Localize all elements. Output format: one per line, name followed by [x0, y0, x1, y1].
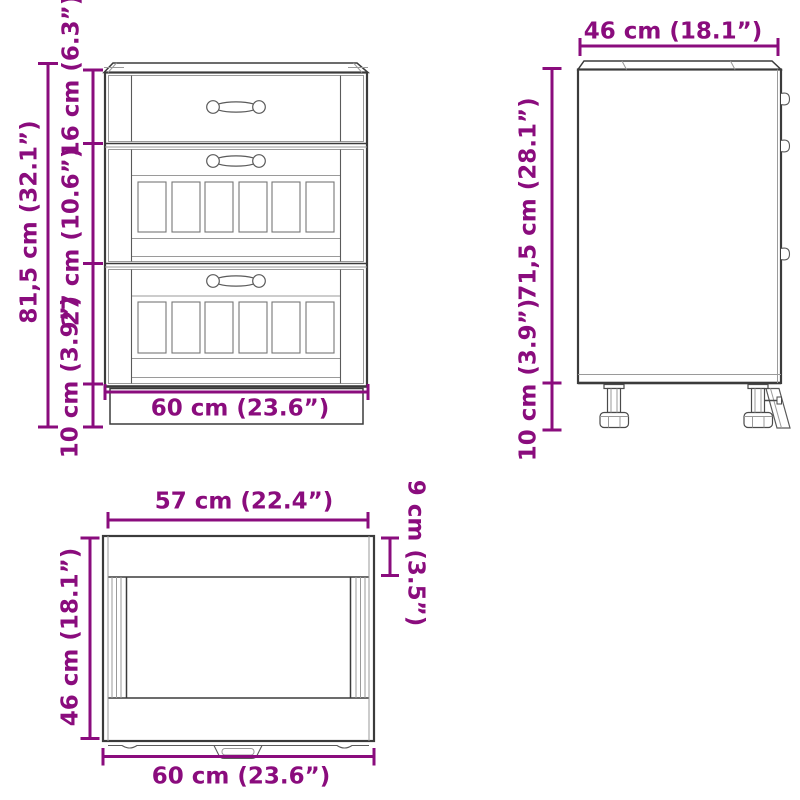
top-width-label: 60 cm (23.6”)	[152, 766, 331, 789]
drawer-handles	[207, 101, 266, 288]
cabinet-line-art	[0, 0, 800, 800]
front-width-label: 60 cm (23.6”)	[151, 398, 330, 421]
top-depth-label: 46 cm (18.1”)	[60, 548, 83, 727]
side-depth-label: 46 cm (18.1”)	[584, 21, 763, 44]
front-top-drawer-label: 16 cm (6.3”)	[61, 0, 84, 157]
top-view-drawing	[103, 536, 374, 759]
front-foot	[600, 385, 629, 428]
side-view-drawing	[578, 61, 790, 428]
front-plinth-label: 10 cm (3.9”)	[60, 296, 83, 459]
mount-clips	[781, 93, 790, 260]
front-view-drawing	[104, 63, 368, 424]
diagram-canvas: 81,5 cm (32.1”) 16 cm (6.3”) 27 cm (10.6…	[0, 0, 800, 800]
top-inner-width-label: 57 cm (22.4”)	[155, 491, 334, 514]
top-front-edge-label: 9 cm (3.5”)	[404, 480, 427, 627]
side-leg-height-label: 10 cm (3.9”)	[518, 299, 541, 462]
side-body-height-label: 71,5 cm (28.1”)	[518, 97, 541, 300]
front-total-height-label: 81,5 cm (32.1”)	[19, 120, 42, 323]
